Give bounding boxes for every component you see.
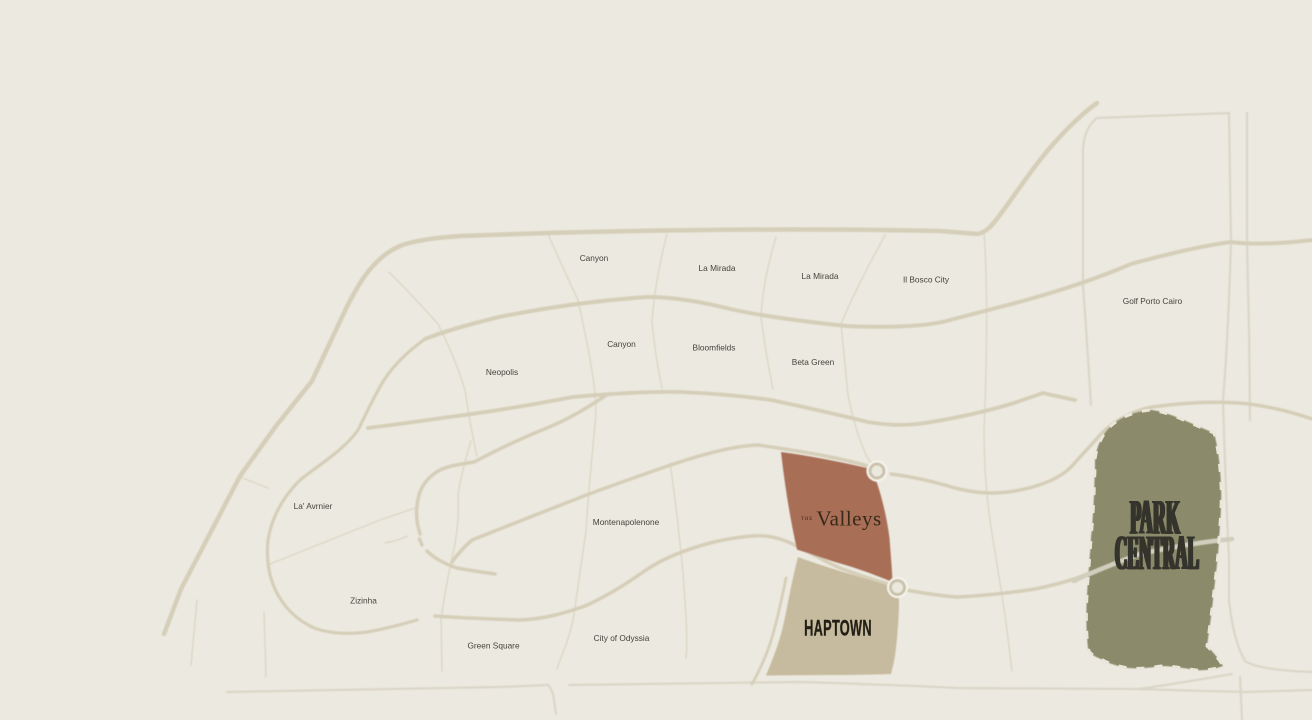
svg-text:La Mirada: La Mirada bbox=[699, 263, 736, 273]
svg-text:La' Avrnier: La' Avrnier bbox=[294, 501, 333, 511]
svg-text:Canyon: Canyon bbox=[607, 339, 636, 349]
svg-text:La Mirada: La Mirada bbox=[802, 271, 839, 281]
svg-text:Beta Green: Beta Green bbox=[792, 357, 835, 367]
svg-text:Bloomfields: Bloomfields bbox=[693, 343, 736, 353]
svg-text:Green Square: Green Square bbox=[467, 641, 520, 651]
svg-text:Valleys: Valleys bbox=[816, 507, 881, 531]
svg-text:THE: THE bbox=[801, 517, 813, 522]
svg-text:CENTRAL: CENTRAL bbox=[1116, 526, 1200, 581]
svg-text:Zizinha: Zizinha bbox=[350, 596, 377, 606]
svg-text:City of Odyssia: City of Odyssia bbox=[594, 633, 650, 643]
svg-text:Golf Porto Cairo: Golf Porto Cairo bbox=[1123, 296, 1183, 306]
svg-text:HAPTOWN: HAPTOWN bbox=[804, 616, 872, 640]
svg-text:Canyon: Canyon bbox=[580, 253, 609, 263]
svg-text:Il Bosco City: Il Bosco City bbox=[903, 275, 950, 285]
svg-text:Montenapolenone: Montenapolenone bbox=[593, 517, 660, 527]
svg-text:Neopolis: Neopolis bbox=[486, 367, 518, 377]
